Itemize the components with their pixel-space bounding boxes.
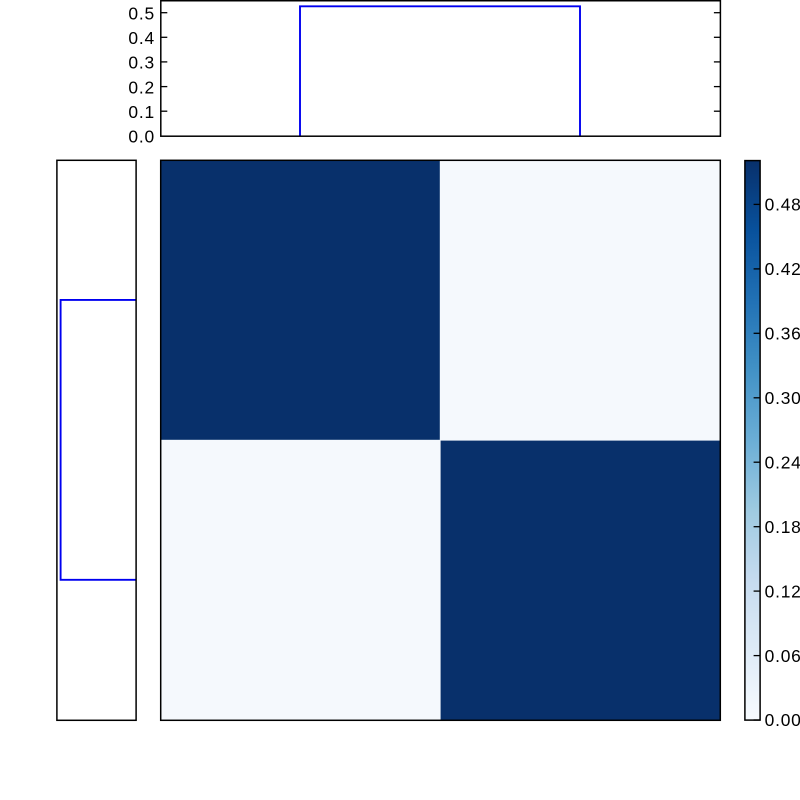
svg-text:0.1: 0.1: [128, 102, 155, 122]
svg-text:0.2: 0.2: [128, 77, 155, 97]
svg-text:0.4: 0.4: [128, 28, 155, 48]
svg-text:0.36: 0.36: [765, 324, 800, 344]
svg-text:0.24: 0.24: [765, 452, 800, 472]
svg-text:0.5: 0.5: [128, 3, 155, 23]
svg-text:0.30: 0.30: [765, 388, 800, 408]
svg-text:0.12: 0.12: [765, 581, 800, 601]
svg-text:0.00: 0.00: [765, 710, 800, 730]
svg-text:0.48: 0.48: [765, 195, 800, 215]
svg-text:0.3: 0.3: [128, 53, 155, 73]
svg-text:0.42: 0.42: [765, 259, 800, 279]
svg-text:0.18: 0.18: [765, 517, 800, 537]
svg-text:0.06: 0.06: [765, 646, 800, 666]
svg-text:0.0: 0.0: [128, 127, 155, 147]
